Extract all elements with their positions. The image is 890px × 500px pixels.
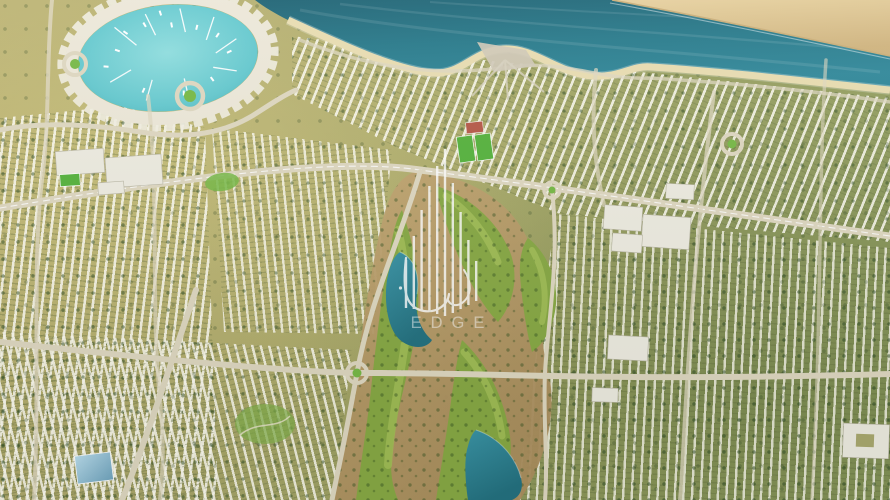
masterplan-aerial-render: EDGE xyxy=(0,0,890,500)
atmosphere-overlay xyxy=(0,0,890,500)
